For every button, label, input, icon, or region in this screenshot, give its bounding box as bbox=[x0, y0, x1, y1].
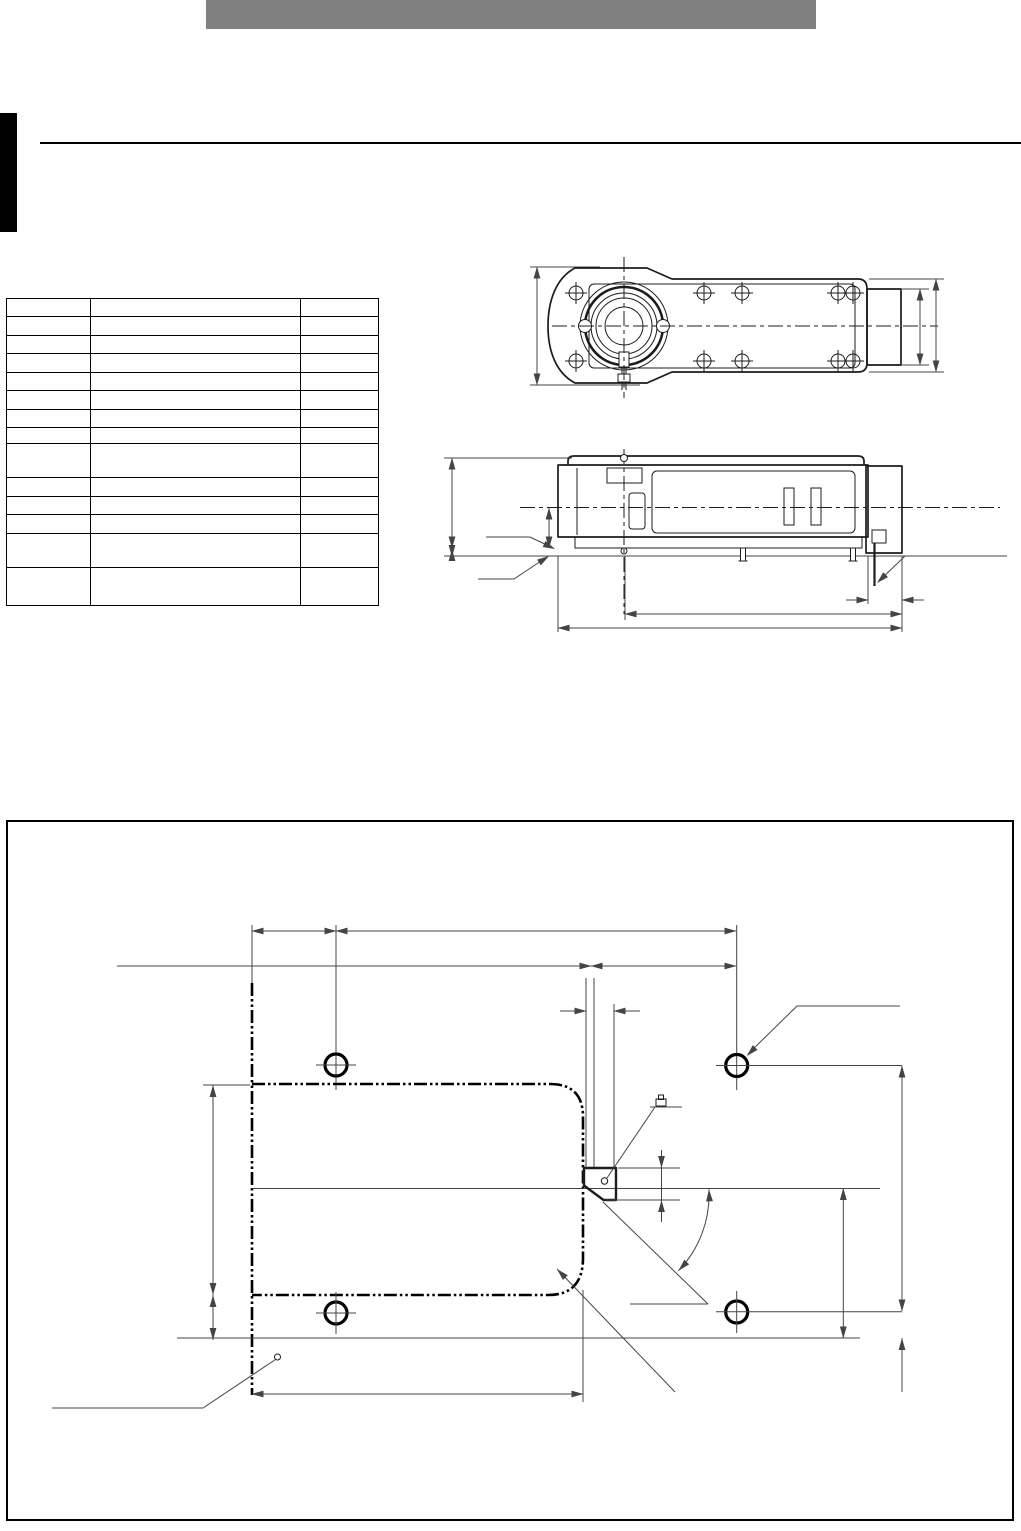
slot bbox=[811, 488, 821, 525]
table-row bbox=[7, 336, 379, 354]
table-row bbox=[7, 497, 379, 515]
edge-tab bbox=[0, 113, 17, 232]
blade-lines bbox=[555, 1202, 708, 1392]
slot bbox=[784, 488, 794, 525]
table-row bbox=[7, 444, 379, 478]
table-cell bbox=[91, 317, 301, 336]
table-cell bbox=[7, 391, 91, 410]
table-cell bbox=[7, 410, 91, 428]
table-cell bbox=[7, 336, 91, 354]
corner-leader bbox=[52, 1354, 281, 1408]
table-cell bbox=[91, 410, 301, 428]
table-row bbox=[7, 428, 379, 444]
table-cell bbox=[7, 428, 91, 444]
section-rule bbox=[40, 142, 1021, 144]
table-cell bbox=[91, 568, 301, 606]
screw-holes bbox=[565, 282, 864, 372]
body-outline bbox=[558, 456, 902, 586]
table-row bbox=[7, 478, 379, 497]
table-row bbox=[7, 354, 379, 373]
table-cell bbox=[91, 336, 301, 354]
table-cell bbox=[91, 373, 301, 391]
header-bar bbox=[206, 0, 816, 29]
table-cell bbox=[7, 568, 91, 606]
table-cell bbox=[7, 299, 91, 317]
table-cell bbox=[7, 373, 91, 391]
table-cell bbox=[301, 428, 379, 444]
table-cell bbox=[91, 534, 301, 568]
table-cell bbox=[7, 444, 91, 478]
table-cell bbox=[301, 373, 379, 391]
table-cell bbox=[301, 299, 379, 317]
table-cell bbox=[91, 428, 301, 444]
shaft-width-dimension bbox=[560, 978, 640, 1168]
table-row bbox=[7, 391, 379, 410]
document-page bbox=[0, 0, 1021, 1531]
table-cell bbox=[301, 391, 379, 410]
clamp-symbol-icon bbox=[656, 1099, 666, 1106]
table-cell bbox=[301, 515, 379, 534]
top-view-drawing bbox=[490, 248, 960, 408]
table-cell bbox=[91, 515, 301, 534]
table-row bbox=[7, 317, 379, 336]
table-cell bbox=[91, 354, 301, 373]
connector-block bbox=[867, 289, 901, 365]
table-cell bbox=[301, 534, 379, 568]
left-leader-lines bbox=[478, 537, 556, 579]
table-cell bbox=[301, 354, 379, 373]
right-vertical-dimensions bbox=[843, 1066, 905, 1392]
table-row bbox=[7, 410, 379, 428]
leader-dot bbox=[275, 1354, 281, 1360]
table-row bbox=[7, 534, 379, 568]
clamp-leader bbox=[607, 1095, 682, 1178]
table-cell bbox=[91, 444, 301, 478]
table-cell bbox=[7, 317, 91, 336]
spec-table bbox=[6, 298, 379, 606]
table-cell bbox=[7, 478, 91, 497]
table-cell bbox=[301, 317, 379, 336]
table-cell bbox=[7, 515, 91, 534]
table-row bbox=[7, 515, 379, 534]
bottom-dimension bbox=[252, 1290, 583, 1402]
diagram-border bbox=[7, 821, 1013, 1520]
rotation-angle-arc bbox=[676, 1189, 713, 1273]
legs bbox=[739, 548, 858, 561]
bottom-dimensions bbox=[558, 556, 924, 632]
table-row bbox=[7, 373, 379, 391]
hole-leader bbox=[744, 1006, 900, 1058]
pivot-bracket bbox=[584, 1168, 616, 1200]
mounting-holes bbox=[316, 1054, 902, 1334]
table-cell bbox=[301, 478, 379, 497]
side-view-drawing bbox=[430, 443, 1015, 665]
table-cell bbox=[301, 410, 379, 428]
table-row bbox=[7, 299, 379, 317]
table-cell bbox=[301, 497, 379, 515]
table-cell bbox=[91, 299, 301, 317]
right-leader bbox=[875, 556, 905, 585]
left-vertical-dimension bbox=[203, 1085, 250, 1340]
table-cell bbox=[301, 444, 379, 478]
height-dimension bbox=[444, 458, 572, 561]
table-cell bbox=[91, 391, 301, 410]
table-cell bbox=[91, 478, 301, 497]
table-cell bbox=[301, 568, 379, 606]
table-cell bbox=[7, 497, 91, 515]
table-cell bbox=[7, 354, 91, 373]
table-cell bbox=[91, 497, 301, 515]
table-cell bbox=[301, 336, 379, 354]
table-row bbox=[7, 568, 379, 606]
table-cell bbox=[7, 534, 91, 568]
installation-diagram bbox=[6, 820, 1014, 1521]
